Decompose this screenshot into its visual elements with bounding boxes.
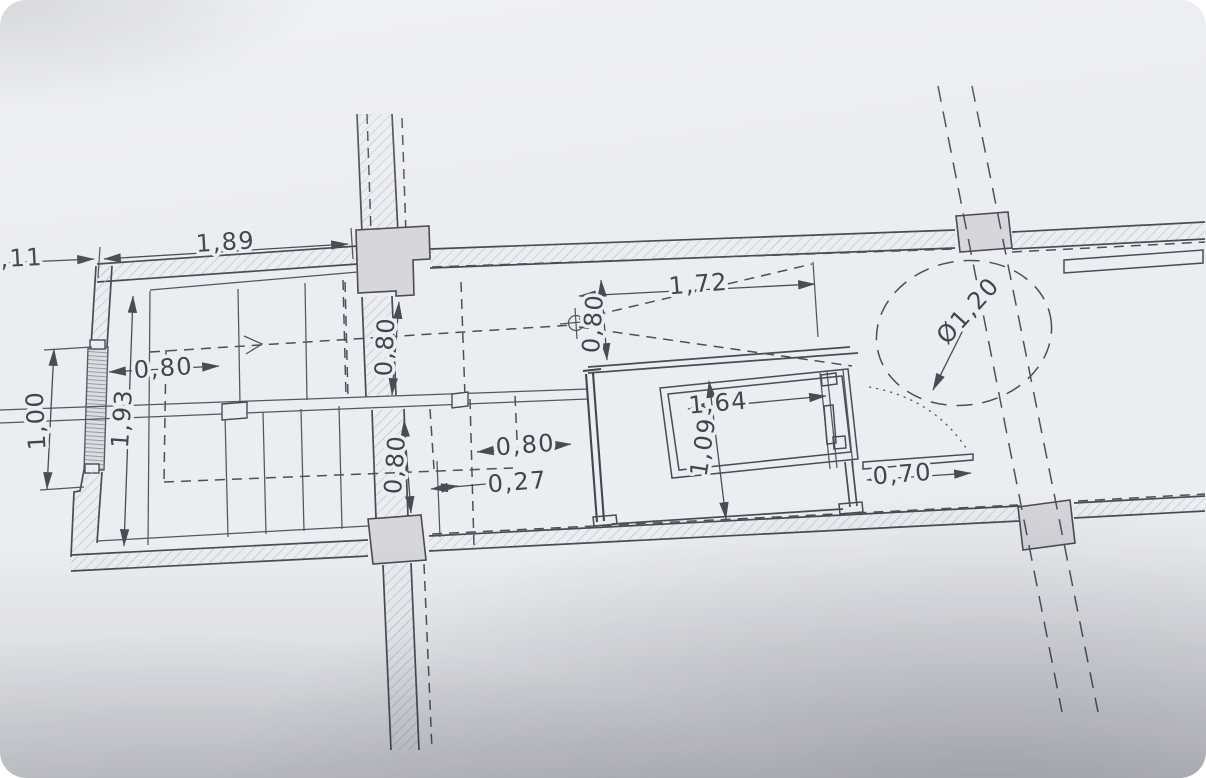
wall-hatch	[357, 114, 398, 233]
extension-line	[813, 262, 818, 337]
beam-outline	[1064, 250, 1203, 273]
dim-line	[431, 484, 486, 489]
dim-label-shaft-depth: 1,09	[685, 415, 722, 478]
dim-label-turning-circle: Ø1,20	[931, 272, 1005, 350]
rail-post	[222, 402, 247, 420]
wall-hatch	[1012, 222, 1205, 249]
stair-landing-edge	[148, 291, 150, 545]
wall-hatch	[71, 540, 368, 571]
floor-plan-drawing: ,11 1,89 0,80 1,00 1,93 0,80 0,80 0,80 0…	[0, 0, 1206, 778]
dim-label-room-opening: 0,80	[133, 352, 194, 384]
stair-tread	[339, 406, 342, 529]
grid-axis-dashed	[972, 86, 1098, 712]
dim-label-partial-left: ,11	[0, 243, 44, 273]
extension-line	[44, 347, 92, 350]
elevator-door-detail	[821, 373, 837, 386]
stair-room-floor-line	[97, 526, 368, 541]
dim-label-shaft-width: 1,64	[687, 386, 749, 419]
dim-label-upper-flight: 0,80	[369, 316, 400, 377]
stair-tread	[225, 415, 228, 537]
stair-tread	[263, 412, 266, 534]
projection-dashed	[164, 468, 513, 482]
datum-cross	[575, 308, 577, 339]
screenshot: ,11 1,89 0,80 1,00 1,93 0,80 0,80 0,80 0…	[0, 0, 1206, 778]
column	[1018, 500, 1075, 550]
rail-post	[452, 392, 468, 408]
window-end-cap	[90, 340, 105, 349]
wall-hatch	[430, 230, 955, 268]
dim-label-landing-length: 1,72	[668, 268, 729, 301]
wall-axis-dashed	[424, 564, 432, 750]
dim-label-landing-clearance: 0,80	[577, 293, 609, 354]
door-jamb	[852, 461, 857, 506]
elevator-room	[583, 347, 973, 526]
wall-hatch	[383, 563, 419, 750]
dim-label-door-width: 0,70	[872, 458, 933, 491]
door-swing-dotted	[869, 387, 968, 451]
dim-label-top-width: 1,89	[195, 226, 256, 258]
wall-hatch	[429, 506, 1020, 551]
sight-line-dashed	[579, 327, 852, 366]
dim-label-corridor-opening: 0,80	[495, 429, 556, 462]
column	[356, 226, 430, 296]
wall-axis-dashed	[402, 118, 406, 235]
dim-label-window-width: 1,00	[20, 390, 51, 451]
wall-axis-dashed	[430, 409, 434, 469]
grid-axis-dashed	[938, 86, 1062, 712]
stair-tread-dashed	[470, 399, 474, 547]
stair-tread	[301, 409, 304, 531]
dim-label-lower-flight: 0,80	[379, 434, 411, 495]
column	[368, 515, 426, 564]
stair-tread	[437, 461, 440, 537]
walking-line	[150, 325, 573, 352]
door-jamb-foot	[839, 502, 863, 514]
axes	[432, 86, 1205, 712]
wall-stub	[583, 369, 601, 371]
wall-axis-dashed	[461, 282, 465, 397]
wall-hatch	[71, 470, 103, 557]
dim-label-stair-room-depth: 1,93	[106, 388, 138, 449]
dim-label-wall-offset: 0,27	[487, 466, 548, 499]
door-jamb	[845, 462, 850, 507]
window-symbol	[84, 347, 108, 470]
walls	[71, 114, 1205, 750]
floor-plan-photo: ,11 1,89 0,80 1,00 1,93 0,80 0,80 0,80 0…	[0, 0, 1206, 778]
